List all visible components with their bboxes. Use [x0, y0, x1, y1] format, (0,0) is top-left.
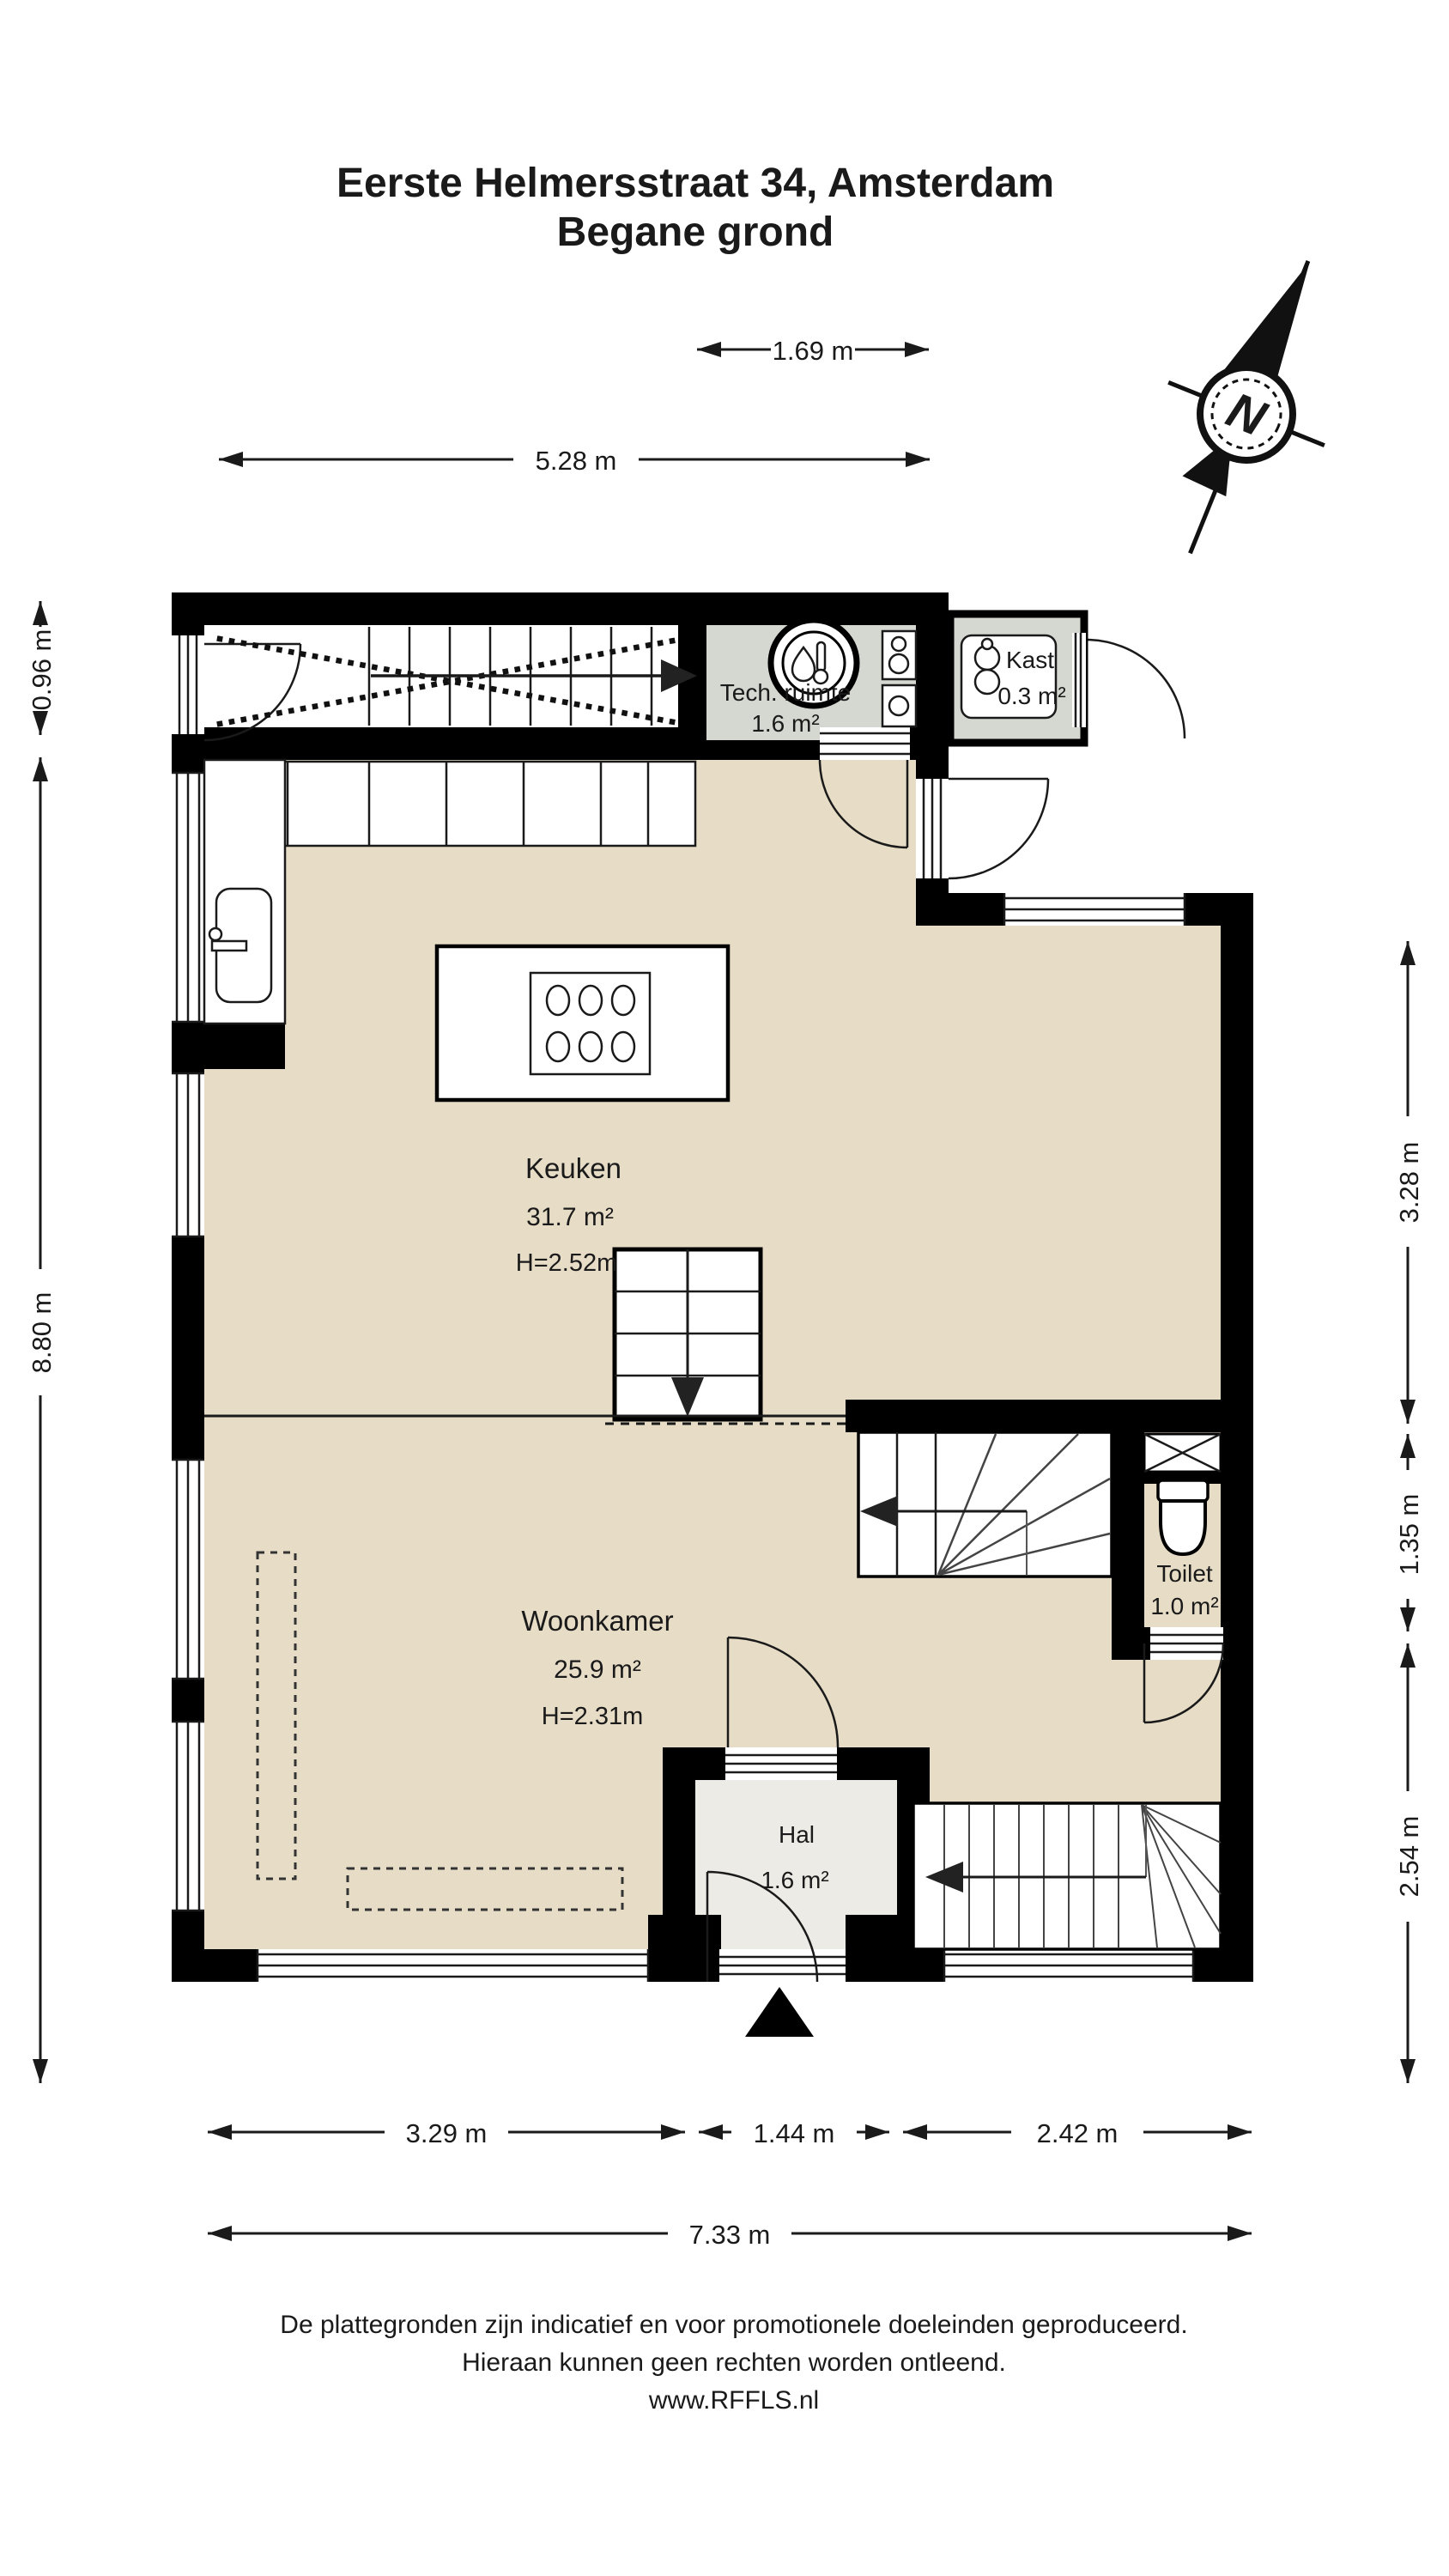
kast-area: 0.3 m² [997, 683, 1065, 709]
floor-plan-drawing: Tech. ruimte 1.6 m² Kast 0.3 m² Keuken 3… [0, 0, 1449, 2576]
keuken-height: H=2.52m [516, 1249, 617, 1277]
dim-bottom-total: 7.33 m [689, 2220, 771, 2250]
shaft-hatch [1144, 1434, 1221, 1472]
kitchen-counter-sink [204, 760, 285, 1024]
woonkamer-height: H=2.31m [542, 1703, 643, 1730]
kitchen-side-door [916, 779, 1048, 878]
kitchen-island [437, 946, 728, 1100]
central-winder-stairs [858, 1432, 1112, 1577]
faucet-icon [209, 928, 221, 940]
woonkamer-label: Woonkamer [521, 1605, 673, 1637]
kast-label: Kast [1006, 647, 1054, 673]
kast-door-gap [1072, 633, 1086, 727]
toilet-area: 1.0 m² [1150, 1593, 1218, 1619]
cooktop-icon [530, 973, 650, 1074]
north-compass-icon: N [1113, 229, 1386, 585]
window-right-top [1004, 893, 1185, 926]
window-bottom-stairs [944, 1949, 1193, 1982]
dim-right-middle: 1.35 m [1394, 1494, 1424, 1576]
keuken-label: Keuken [525, 1152, 621, 1184]
window-left-living-1 [172, 1460, 204, 1679]
kast-door [1072, 633, 1185, 738]
dim-bottom-middle: 1.44 m [754, 2118, 835, 2148]
dim-right-lower: 2.54 m [1394, 1816, 1424, 1898]
dim-bottom-left: 3.29 m [406, 2118, 488, 2148]
entrance-marker-icon [745, 1987, 814, 2037]
keuken-area: 31.7 m² [526, 1203, 614, 1231]
keuken-floor-right [916, 926, 1221, 1400]
kast-room [950, 614, 1084, 743]
disclaimer-website: www.RFFLS.nl [0, 2382, 1449, 2420]
window-left-living-2 [172, 1722, 204, 1911]
tech-ruimte-area: 1.6 m² [751, 710, 819, 737]
hal-label: Hal [779, 1821, 815, 1848]
woonkamer-area: 25.9 m² [554, 1656, 641, 1684]
disclaimer-line1: De plattegronden zijn indicatief en voor… [0, 2306, 1449, 2344]
hal-area: 1.6 m² [761, 1867, 828, 1893]
dim-bottom-right: 2.42 m [1037, 2118, 1119, 2148]
bottom-right-stairs [913, 1803, 1221, 1949]
dim-right-upper: 3.28 m [1394, 1142, 1424, 1224]
window-bottom-living [258, 1949, 648, 1982]
window-left-kitchen-1 [172, 773, 204, 1022]
floorplan-page: Eerste Helmersstraat 34, Amsterdam Began… [0, 0, 1449, 2576]
disclaimer: De plattegronden zijn indicatief en voor… [0, 2306, 1449, 2420]
window-left-kitchen-2 [172, 1073, 204, 1236]
disclaimer-line2: Hieraan kunnen geen rechten worden ontle… [0, 2344, 1449, 2382]
toilet-label: Toilet [1156, 1560, 1213, 1587]
dim-left-main: 8.80 m [27, 1292, 57, 1374]
meter-boxes [882, 631, 916, 726]
dim-left-upper: 0.96 m [27, 629, 57, 711]
toilet-icon [1158, 1480, 1208, 1554]
dim-top-outer: 5.28 m [536, 446, 617, 476]
dim-top-inner: 1.69 m [773, 336, 854, 366]
tech-ruimte-label: Tech. ruimte [720, 679, 852, 706]
